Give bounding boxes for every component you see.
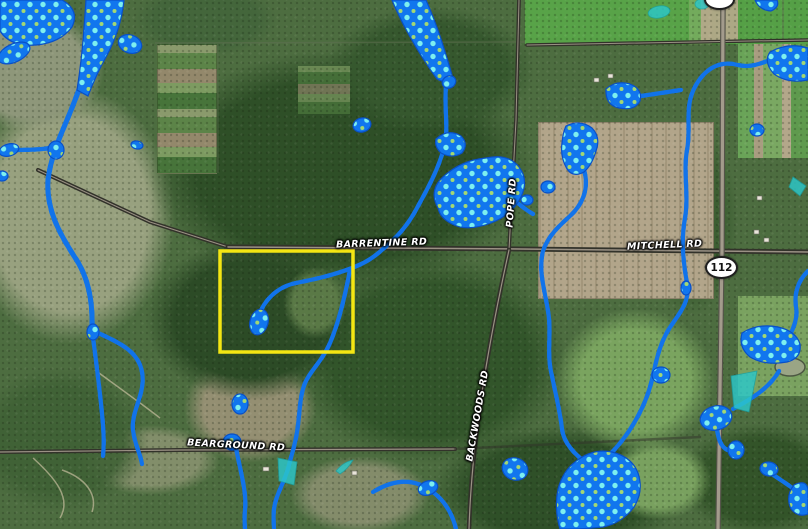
map-canvas[interactable]: BARRENTINE RD MITCHELL RD POPE RD BACKWO… — [0, 0, 808, 529]
roads-layer — [0, 0, 808, 529]
road-top-right — [527, 40, 808, 45]
map-overlay — [0, 0, 808, 529]
highway-112-number: 112 — [711, 262, 733, 274]
highway-112-shield: 112 — [705, 256, 738, 279]
road-backwoods — [469, 250, 509, 529]
parcel-lines — [33, 0, 783, 518]
